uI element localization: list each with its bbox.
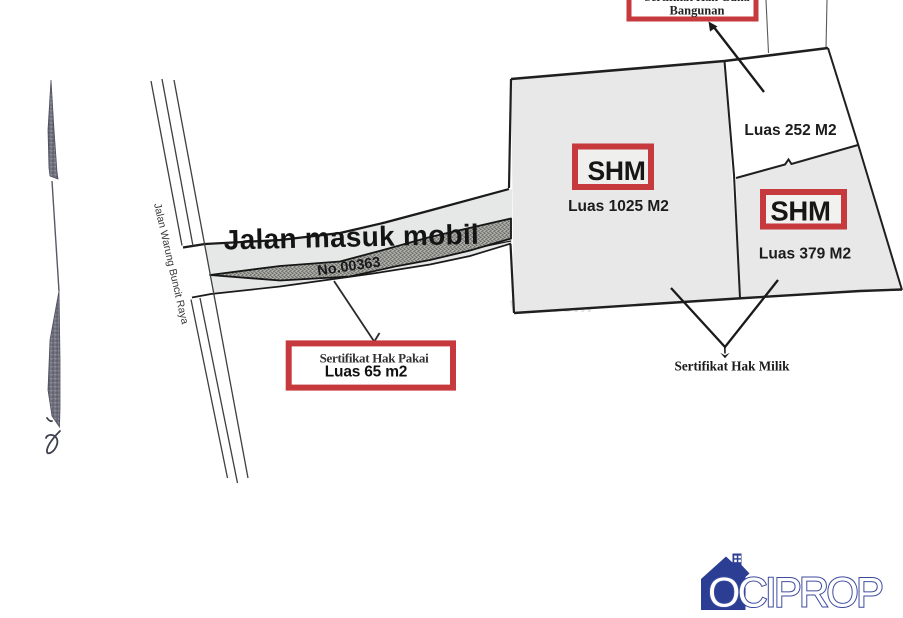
- svg-text:Luas 1025 M2: Luas 1025 M2: [568, 198, 669, 215]
- svg-text:OCIPROP: OCIPROP: [708, 569, 882, 616]
- svg-text:Sertifikat Hak Milik: Sertifikat Hak Milik: [674, 359, 790, 374]
- svg-text:Luas 65 m2: Luas 65 m2: [325, 364, 407, 381]
- svg-text:Jalan masuk mobil: Jalan masuk mobil: [223, 219, 479, 256]
- svg-text:SHM: SHM: [588, 156, 646, 186]
- svg-text:Bangunan: Bangunan: [670, 4, 725, 18]
- svg-text:Luas 252 M2: Luas 252 M2: [744, 122, 836, 139]
- svg-text:SHM: SHM: [770, 196, 830, 227]
- svg-text:Luas 379 M2: Luas 379 M2: [759, 246, 851, 263]
